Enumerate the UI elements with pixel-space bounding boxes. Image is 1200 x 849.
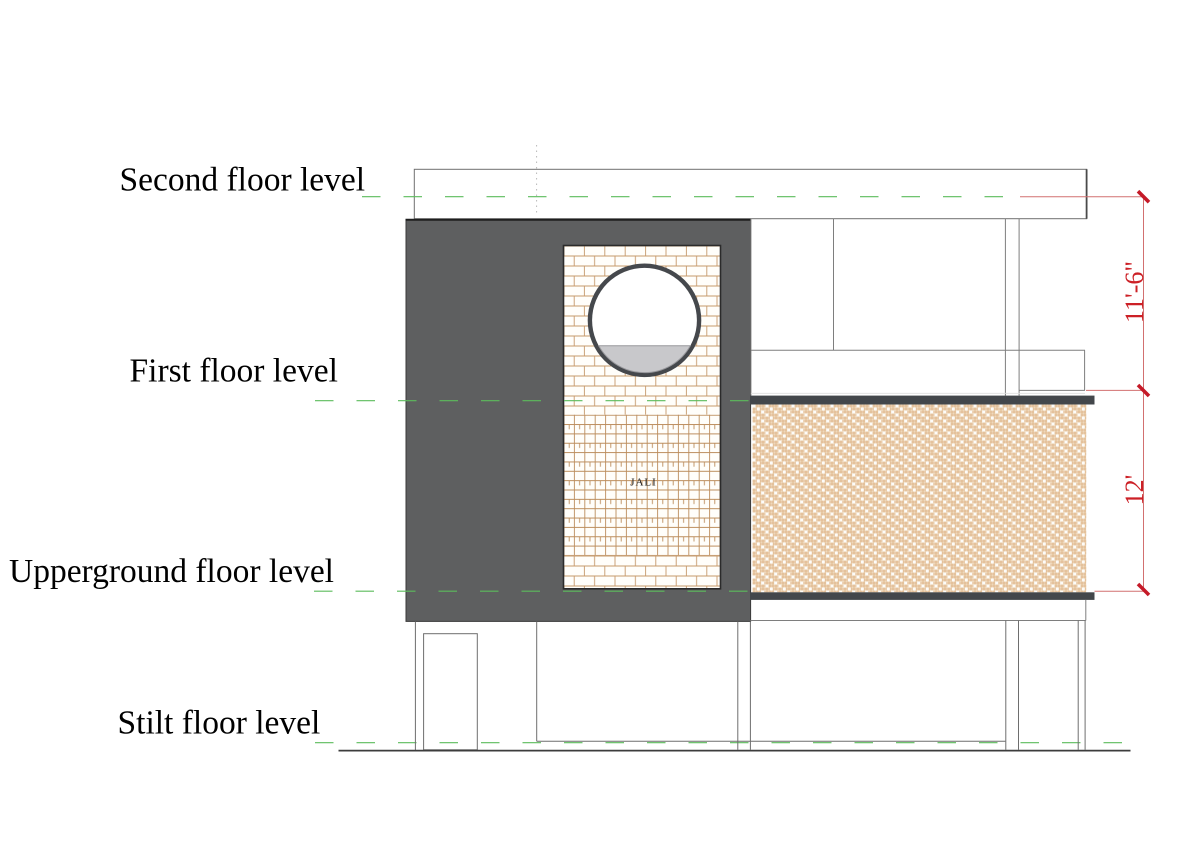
svg-text:Stilt floor level: Stilt floor level <box>118 704 321 741</box>
svg-text:Second floor level: Second floor level <box>120 162 366 199</box>
svg-text:11'-6": 11'-6" <box>1120 261 1149 323</box>
svg-text:12': 12' <box>1120 475 1149 506</box>
svg-text:First floor level: First floor level <box>130 353 338 390</box>
svg-text:JALI: JALI <box>630 477 657 489</box>
svg-text:Upperground floor level: Upperground floor level <box>9 553 334 590</box>
